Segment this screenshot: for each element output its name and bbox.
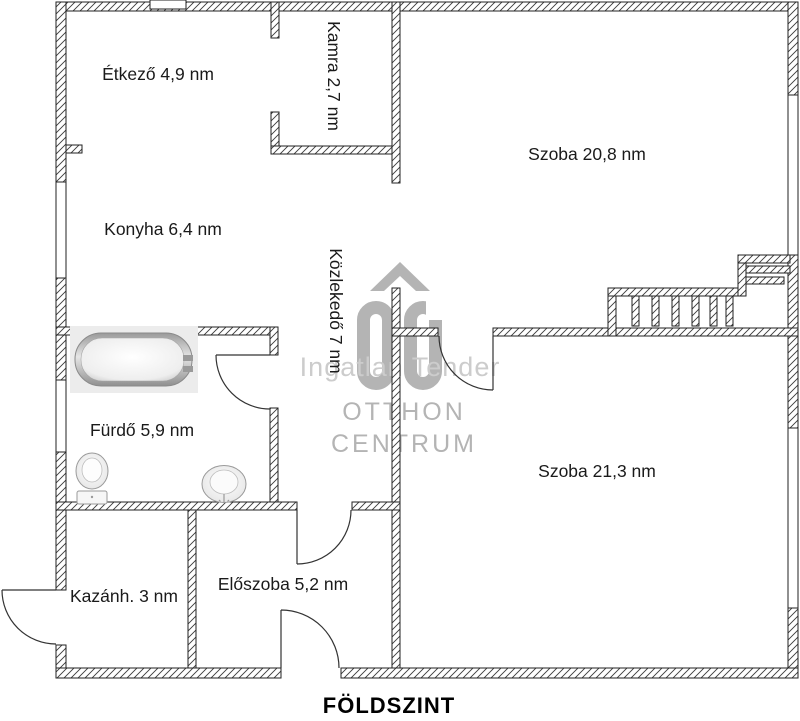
bathtub: [70, 326, 198, 393]
opening-jamb: [297, 502, 352, 510]
bathtub-faucet: [183, 366, 193, 372]
door-hall-top: [297, 510, 351, 564]
window: [788, 95, 798, 255]
wall-segment: [270, 327, 278, 355]
bathtub-faucet: [183, 355, 193, 361]
opening-jamb: [281, 668, 341, 678]
stair-step: [672, 296, 679, 326]
room-label-kozlekedo: Közlekedő 7 nm: [326, 248, 346, 374]
room-label-eloszoba: Előszoba 5,2 nm: [218, 574, 348, 594]
stair-wall: [608, 288, 740, 296]
stair-step: [746, 266, 790, 273]
wall-segment: [352, 502, 400, 510]
watermark-roof-icon: [370, 262, 430, 291]
stair-step: [746, 277, 784, 284]
wall-segment: [493, 328, 798, 336]
room-label-kazanhaz: Kazánh. 3 nm: [70, 586, 178, 606]
toilet: [76, 453, 108, 504]
wall-segment: [392, 2, 400, 183]
stair-wall: [738, 255, 790, 263]
floor-title: FÖLDSZINT: [323, 693, 455, 718]
floor-plan-svg: Ingatlan Tender OTTHON CENTRUM: [0, 0, 800, 721]
wall-segment: [56, 668, 281, 678]
opening-jamb: [56, 590, 66, 645]
watermark-brand-line1: OTTHON: [342, 398, 466, 426]
room-label-szoba-felso: Szoba 20,8 nm: [528, 144, 646, 164]
toilet-flush-dot: [91, 496, 93, 498]
sink-basin: [210, 470, 238, 494]
wall-niche: [150, 0, 186, 9]
bathtub-basin: [81, 338, 184, 381]
watermark-brand-line2: CENTRUM: [331, 430, 477, 458]
wall-segment: [271, 2, 279, 38]
room-label-konyha: Konyha 6,4 nm: [104, 219, 222, 239]
stair-step: [726, 296, 733, 326]
window: [788, 428, 798, 608]
door-boiler-exterior: [2, 590, 56, 644]
toilet-bowl-inner: [82, 458, 102, 482]
wall-segment: [271, 146, 400, 154]
watermark-logo-c-notch: [426, 293, 454, 320]
sink: [202, 466, 246, 503]
opening-jamb: [270, 355, 278, 408]
floor-plan-page: Ingatlan Tender OTTHON CENTRUM: [0, 0, 800, 721]
wall-segment: [392, 328, 438, 336]
room-label-szoba-also: Szoba 21,3 nm: [538, 461, 656, 481]
wall-segment: [788, 255, 798, 428]
opening-jamb: [271, 38, 279, 112]
stair-step: [632, 296, 639, 326]
stair-step: [710, 296, 717, 326]
wall-segment: [56, 2, 66, 182]
room-label-etkezo: Étkező 4,9 nm: [102, 64, 214, 84]
wall-segment: [392, 288, 400, 510]
wall-segment: [188, 510, 196, 668]
wall-segment: [270, 408, 278, 510]
bathroom-fixtures: [70, 326, 246, 504]
room-label-kamra: Kamra 2,7 nm: [324, 21, 344, 131]
stair-step: [652, 296, 659, 326]
stair-step: [692, 296, 699, 326]
door-bathroom: [216, 355, 270, 409]
window: [56, 182, 66, 278]
door-front-entrance: [281, 610, 339, 668]
wall-segment: [341, 668, 798, 678]
staircase: [608, 255, 790, 336]
wall-stub: [66, 145, 82, 153]
wall-segment: [56, 452, 66, 590]
wall-segment: [392, 510, 400, 668]
wall-segment: [788, 2, 798, 95]
window: [56, 380, 66, 452]
room-label-furdo: Fürdő 5,9 nm: [90, 420, 194, 440]
